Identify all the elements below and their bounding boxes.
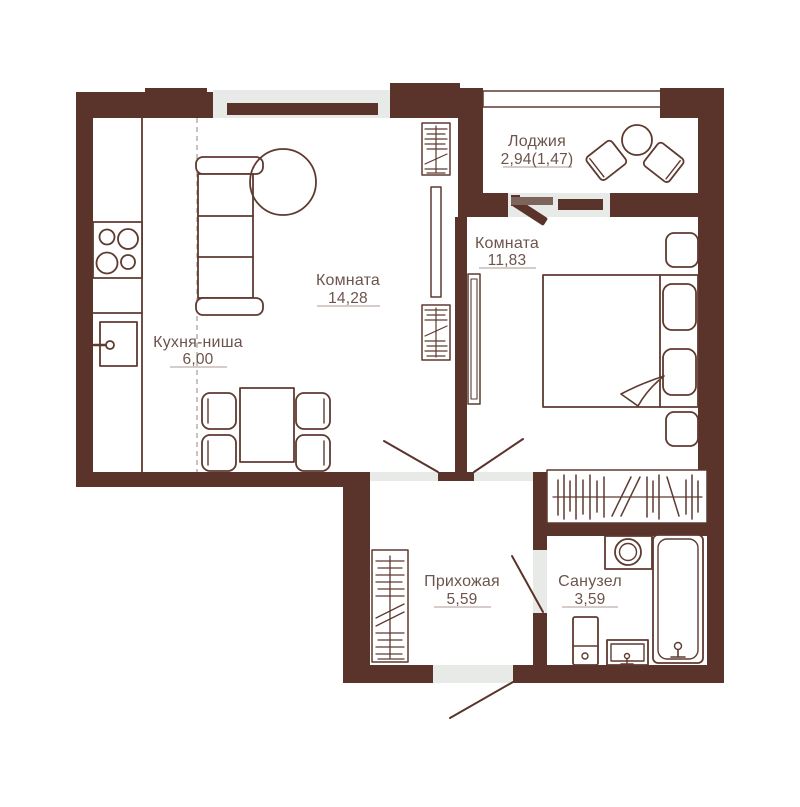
room-bedroom-area: 11,83: [488, 252, 527, 269]
wall-hall-bath-lower: [533, 613, 547, 665]
living-hall-threshold: [370, 472, 438, 481]
room-living-area: 14,28: [328, 290, 368, 307]
room-bathroom-area: 3,59: [575, 591, 606, 608]
room-kitchen-name: Кухня-ниша: [153, 334, 243, 351]
entrance-threshold: [433, 665, 513, 683]
loggia-glazing: [483, 91, 668, 107]
chair-icon: [202, 435, 236, 471]
room-loggia-area: 2,94(1,47): [501, 151, 574, 168]
chair-icon: [296, 435, 330, 471]
wall-hall-bath-upper: [533, 472, 547, 550]
loggia-table-icon: [622, 125, 652, 155]
sofa-body-icon: [198, 174, 253, 298]
chair-icon: [202, 393, 236, 429]
wall-loggia-bedroom-right: [610, 193, 698, 217]
room-hallway-area: 5,59: [447, 591, 478, 608]
wall-right-outer-lower: [707, 472, 724, 683]
dining-table-icon: [240, 388, 294, 462]
wall-kitchen-bottom: [76, 472, 370, 487]
wall-left-outer: [76, 92, 93, 487]
bathroom-door-threshold: [533, 550, 547, 613]
round-rug-icon: [250, 149, 316, 215]
room-kitchen-area: 6,00: [183, 351, 214, 368]
wall-right-outer: [698, 88, 724, 472]
loggia-chair-icon: [585, 139, 628, 182]
wall-bottom-right: [513, 665, 724, 683]
room-hallway-name: Прихожая: [424, 573, 500, 590]
pillow-icon: [663, 284, 696, 330]
room-living-name: Комната: [316, 272, 380, 289]
wall-top-left-pilaster: [145, 88, 207, 93]
wall-loggia-bedroom-left: [458, 193, 508, 217]
sofa-armrest-icon: [196, 157, 263, 174]
room-bathroom-name: Санузел: [558, 573, 622, 590]
wall-bottom-left: [343, 665, 433, 683]
entrance-door-leaf: [450, 682, 513, 718]
washing-machine-icon: [605, 536, 652, 569]
chair-icon: [296, 393, 330, 429]
sink-faucet-icon: [106, 341, 114, 349]
room-loggia-name: Лоджия: [508, 133, 566, 150]
wall-hall-left: [343, 472, 370, 665]
tv-stand-icon: [431, 187, 441, 297]
floor-plan: Комната 14,28 Кухня-ниша 6,00 Лоджия 2,9…: [0, 0, 800, 807]
living-room-door-leaf: [384, 441, 438, 472]
nightstand-icon: [666, 233, 698, 267]
wall-living-bedroom-foot: [438, 472, 474, 481]
wall-living-bedroom: [455, 217, 467, 472]
balcony-window-sill: [558, 199, 603, 210]
pillow-icon: [663, 349, 696, 395]
bedroom-wardrobe-icon: [468, 274, 480, 404]
room-bedroom-name: Комната: [475, 235, 539, 252]
wall-top-left: [76, 92, 213, 118]
bedroom-hall-threshold: [474, 472, 533, 481]
window-glass-bar: [227, 103, 378, 115]
toilet-icon: [573, 617, 598, 665]
balcony-door-frame-bar: [511, 197, 553, 205]
sofa-armrest-icon: [196, 298, 263, 315]
wall-closet-bath: [547, 523, 707, 536]
wall-top-center-block: [390, 83, 460, 118]
bathtub-icon: [653, 535, 703, 663]
bedroom-door-leaf: [474, 439, 523, 472]
nightstand-icon: [666, 412, 698, 446]
